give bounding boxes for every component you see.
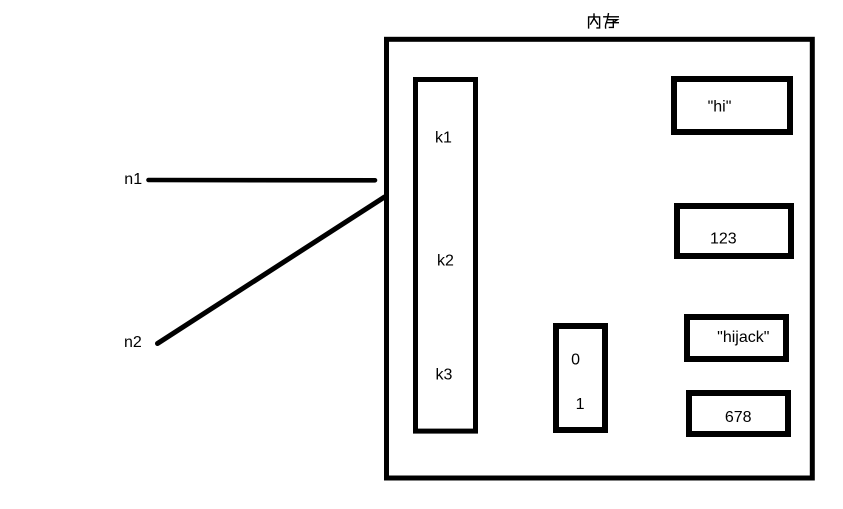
svg-text:n1: n1 (124, 171, 142, 188)
svg-text:n2: n2 (124, 334, 142, 351)
svg-text:k2: k2 (437, 252, 454, 269)
svg-text:"hi": "hi" (708, 98, 732, 115)
svg-text:123: 123 (710, 231, 737, 248)
svg-text:"hijack": "hijack" (717, 329, 769, 346)
svg-text:k3: k3 (435, 367, 452, 384)
svg-text:678: 678 (725, 409, 752, 426)
svg-text:0: 0 (571, 352, 580, 369)
svg-text:1: 1 (576, 396, 585, 413)
svg-text:k1: k1 (435, 129, 452, 146)
